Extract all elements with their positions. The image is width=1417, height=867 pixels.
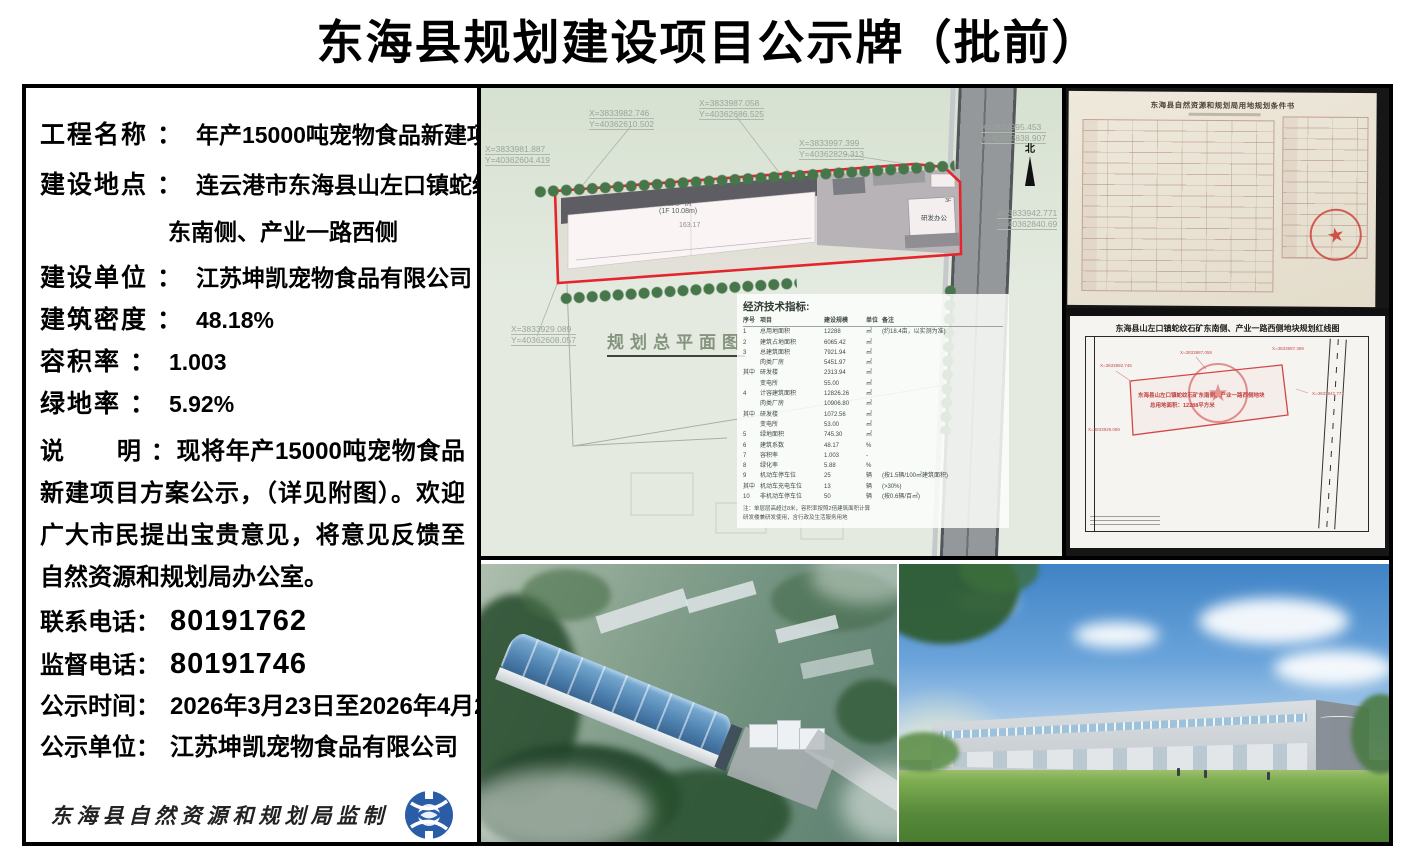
coord-label: X=3833987.058Y=40362686.525 (699, 98, 764, 120)
office-box (749, 724, 779, 748)
north-arrow-icon: 北 (1025, 140, 1035, 186)
ind-cell: 50 (824, 492, 866, 502)
ind-cell: ㎡ (866, 368, 882, 378)
person-figure (1177, 768, 1180, 776)
ind-cell: 2313.94 (824, 368, 866, 378)
notice-page: 东海县规划建设项目公示牌（批前） 工程名称 ：年产15000吨宠物食品新建项目 … (0, 0, 1417, 867)
indicator-table: 经济技术指标: 序号项目建设规模单位备注 1总用地面积12288㎡(约18.4亩… (737, 294, 1009, 528)
contact-value: 2026年3月23日至2026年4月2日 (170, 688, 512, 726)
ind-cell: 绿地面积 (760, 430, 824, 440)
distant-building (800, 649, 874, 680)
ind-cell: (按1.5辆/100㎡建筑面积) (882, 471, 1003, 481)
contact-value: 80191762 (170, 602, 307, 640)
field-value: 东南侧、产业一路西侧 (168, 215, 398, 249)
ind-cell: ㎡ (866, 430, 882, 440)
ind-cell: 8 (743, 461, 760, 471)
ind-cell: 6 (743, 441, 760, 451)
field-value: 年产15000吨宠物食品新建项目 (196, 118, 513, 152)
ind-cell (743, 420, 760, 430)
field-project-name: 工程名称 ：年产15000吨宠物食品新建项目 (40, 118, 465, 152)
document-gap (1066, 308, 1389, 316)
contact-value: 80191746 (170, 645, 307, 683)
map-frame: X=3833982.746 X=3833987.058 X=3833997.39… (1085, 336, 1369, 532)
ind-cell: 辆 (866, 482, 882, 492)
conditions-subtitle-bar (1189, 113, 1261, 117)
ind-cell: 非机动车停车位 (760, 492, 824, 502)
publicity-unit: 公示单位：江苏坤凯宠物食品有限公司 (40, 729, 465, 767)
ind-cell: ㎡ (866, 410, 882, 420)
ind-cell (882, 461, 1003, 471)
conditions-table-left (1081, 119, 1274, 292)
ind-cell: % (866, 461, 882, 471)
field-label: 容积率 ： (40, 345, 157, 379)
field-label: 工程名称 ： (40, 118, 184, 152)
ind-cell (743, 379, 760, 389)
office-label: 研发办公 (921, 212, 947, 222)
note-paragraph: 说 明 ：现将年产15000吨宠物食品新建项目方案公示，（详见附图）。欢迎广大市… (40, 431, 465, 599)
ind-cell: ㎡ (866, 389, 882, 399)
ind-header: 备注 (882, 316, 1003, 327)
factory-length-label: 163.17 (679, 222, 700, 229)
red-seal-icon: ★ (1188, 363, 1248, 423)
map-corner-coord: X=3833987.058 (1180, 350, 1212, 355)
cloud (1074, 622, 1159, 648)
ind-cell: 1.003 (824, 451, 866, 461)
ind-header: 建设规模 (824, 316, 866, 327)
distant-building (685, 581, 756, 614)
ind-cell: 研发楼 (760, 368, 824, 378)
ind-cell (882, 399, 1003, 409)
field-location-line2: 东南侧、产业一路西侧 (40, 215, 465, 249)
ind-cell: 13 (824, 482, 866, 492)
ind-cell (882, 358, 1003, 368)
ind-cell (882, 379, 1003, 389)
ind-cell: 12826.26 (824, 389, 866, 399)
map-corner-coord: X=3833982.746 (1100, 363, 1132, 368)
supervise-phone: 监督电话：80191746 (40, 645, 465, 685)
ind-cell: 10906.80 (824, 399, 866, 409)
ind-cell (882, 338, 1003, 348)
ind-header: 序号 (743, 316, 760, 327)
ind-cell (882, 389, 1003, 399)
ind-cell (882, 451, 1003, 461)
ind-cell: 机动车充电车位 (760, 482, 824, 492)
tree-blob (521, 569, 611, 621)
coord-label: X=3833942.771Y=40362840.69 (997, 208, 1057, 230)
ind-cell: 5451.97 (824, 358, 866, 368)
ind-cell: 3 (743, 348, 760, 358)
ind-cell: ㎡ (866, 358, 882, 368)
ind-cell: 其中 (743, 482, 760, 492)
ind-cell (882, 430, 1003, 440)
ind-cell: % (866, 441, 882, 451)
field-value: 江苏坤凯宠物食品有限公司 (196, 261, 472, 295)
ind-cell: (按0.6辆/百㎡) (882, 492, 1003, 502)
ind-cell (882, 410, 1003, 420)
ind-cell: 研发楼 (760, 410, 824, 420)
ind-cell: 机动车停车位 (760, 471, 824, 481)
ind-cell: ㎡ (866, 399, 882, 409)
coord-label: X=3833929.089Y=40362608.057 (511, 324, 576, 346)
grass-field (899, 770, 1389, 842)
plan-caption: 规划总平面图 (607, 328, 745, 357)
ind-cell: ㎡ (866, 338, 882, 348)
ind-cell: 辆 (866, 471, 882, 481)
coord-label: X=3833982.746Y=40362610.502 (589, 108, 654, 130)
contact-label: 联系电话： (40, 604, 160, 642)
ind-cell: 55.00 (824, 379, 866, 389)
field-value: 5.92% (169, 387, 234, 421)
coord-label: X=3833995.453Y=40362838.907 (981, 122, 1046, 144)
office-box (777, 720, 801, 750)
indicator-notes: 注：单层层高超过8米，容积率按照2倍建筑面积计算研发楼兼研发使用，含行政及生活服… (743, 505, 1003, 522)
ind-cell: 7921.94 (824, 348, 866, 358)
ind-cell: ㎡ (866, 327, 882, 337)
ind-cell: 变电所 (760, 420, 824, 430)
field-location: 建设地点 ：连云港市东海县山左口镇蛇纹石矿 (40, 168, 465, 202)
ind-cell (743, 358, 760, 368)
ind-cell: 辆 (866, 492, 882, 502)
field-green-ratio: 绿地率 ：5.92% (40, 387, 465, 421)
ind-cell: 计容建筑面积 (760, 389, 824, 399)
field-density: 建筑密度 ：48.18% (40, 303, 465, 337)
ind-cell: 745.30 (824, 430, 866, 440)
ind-cell (882, 368, 1003, 378)
ind-cell: 1072.56 (824, 410, 866, 420)
ind-cell: ㎡ (866, 348, 882, 358)
factory-label: 肉类厂房(1F 10.08m) (659, 200, 697, 216)
ind-cell: 肉类厂房 (760, 399, 824, 409)
map-corner-coord: X=3833997.399 (1272, 346, 1304, 351)
ind-cell: 建筑系数 (760, 441, 824, 451)
ind-cell: 5 (743, 430, 760, 440)
ind-cell: 2 (743, 338, 760, 348)
ind-cell: 肉类厂房 (760, 358, 824, 368)
field-builder: 建设单位 ：江苏坤凯宠物食品有限公司 (40, 261, 465, 295)
ind-cell: 12288 (824, 327, 866, 337)
ind-cell: 48.17 (824, 441, 866, 451)
ind-cell: 容积率 (760, 451, 824, 461)
ind-cell: 9 (743, 471, 760, 481)
ind-cell: - (866, 451, 882, 461)
ind-cell: 5.88 (824, 461, 866, 471)
ind-cell: 总建筑面积 (760, 348, 824, 358)
info-panel: 工程名称 ：年产15000吨宠物食品新建项目 建设地点 ：连云港市东海县山左口镇… (26, 88, 481, 842)
ind-cell: (>30%) (882, 482, 1003, 492)
field-label: 建筑密度 ： (40, 303, 184, 337)
ind-cell: ㎡ (866, 420, 882, 430)
field-value: 1.003 (169, 345, 227, 379)
tree-blob (836, 679, 897, 744)
note-label: 说 明 ： (40, 438, 177, 465)
office-floors-label: 3F (945, 198, 951, 204)
person-figure (1267, 772, 1270, 780)
redline-map-document: 东海县山左口镇蛇纹石矿东南侧、产业一路西侧地块规划红线图 X=3833982.7… (1070, 316, 1385, 548)
field-far: 容积率 ：1.003 (40, 345, 465, 379)
page-title: 东海县规划建设项目公示牌（批前） (0, 4, 1417, 73)
bureau-seal-text: 东海县自然资源和规划局监制 (51, 800, 389, 830)
ind-cell (882, 348, 1003, 358)
contact-label: 公示时间： (40, 688, 160, 726)
map-corner-coord: X=3833929.089 (1088, 427, 1120, 432)
indicator-title: 经济技术指标: (743, 299, 1003, 314)
redline-title: 东海县山左口镇蛇纹石矿东南侧、产业一路西侧地块规划红线图 (1070, 323, 1385, 334)
coord-label: X=3833981.887Y=40362604.419 (485, 144, 550, 166)
contact-value: 江苏坤凯宠物食品有限公司 (170, 729, 458, 767)
person-figure (1204, 770, 1207, 778)
ind-header: 单位 (866, 316, 882, 327)
conditions-title: 东海县自然资源和规划局用地规划条件书 (1069, 99, 1377, 112)
ind-cell: ㎡ (866, 379, 882, 389)
ind-cell (882, 441, 1003, 451)
notice-board-frame: 工程名称 ：年产15000吨宠物食品新建项目 建设地点 ：连云港市东海县山左口镇… (22, 84, 1393, 846)
ind-cell (882, 420, 1003, 430)
ind-cell: 建筑占地面积 (760, 338, 824, 348)
field-label: 建设地点 ： (40, 168, 184, 202)
ind-cell: 25 (824, 471, 866, 481)
ind-cell: (约18.4亩，以实测为准) (882, 327, 1003, 337)
ind-cell: 变电所 (760, 379, 824, 389)
field-label: 建设单位 ： (40, 261, 184, 295)
ind-cell: 53.00 (824, 420, 866, 430)
ind-cell: 其中 (743, 368, 760, 378)
contact-phone: 联系电话：80191762 (40, 602, 465, 642)
planning-conditions-document: 东海县自然资源和规划局用地规划条件书 ★ (1067, 91, 1376, 307)
ind-cell: 10 (743, 492, 760, 502)
ind-cell: 总用地面积 (760, 327, 824, 337)
indicator-grid: 序号项目建设规模单位备注 1总用地面积12288㎡(约18.4亩，以实测为准) … (743, 316, 1003, 502)
cloud (1274, 650, 1389, 686)
ind-cell: 其中 (743, 410, 760, 420)
ind-cell (743, 399, 760, 409)
ind-cell: 7 (743, 451, 760, 461)
contact-label: 监督电话： (40, 647, 160, 685)
ind-cell: 1 (743, 327, 760, 337)
documents-panel: 东海县自然资源和规划局用地规划条件书 ★ 东海县山左口镇蛇纹石矿东南侧、产业一路… (1062, 88, 1389, 560)
cloud (1199, 598, 1349, 644)
coord-label: X=3833997.399Y=40362829.313 (799, 138, 864, 160)
ind-cell: 4 (743, 389, 760, 399)
ind-header: 项目 (760, 316, 824, 327)
map-corner-coord: X=3833942.771 (1312, 391, 1344, 396)
field-label: 绿地率 ： (40, 387, 157, 421)
field-value: 48.18% (196, 303, 274, 337)
ind-cell: 绿化率 (760, 461, 824, 471)
bureau-seal-row: 东海县自然资源和规划局监制 (40, 789, 465, 841)
contact-label: 公示单位： (40, 729, 160, 767)
site-plan: X=3833982.746Y=40362610.502 X=3833987.05… (481, 88, 1062, 560)
ind-cell: 6065.42 (824, 338, 866, 348)
aerial-rendering (481, 564, 897, 842)
bureau-logo-icon (403, 789, 455, 841)
publicity-period: 公示时间：2026年3月23日至2026年4月2日 (40, 688, 465, 726)
street-rendering (899, 564, 1389, 842)
